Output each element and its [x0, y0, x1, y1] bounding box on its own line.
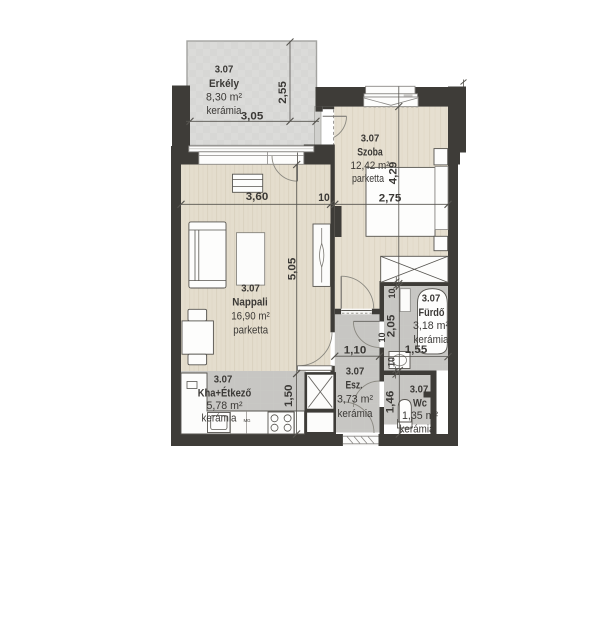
svg-text:kerámia: kerámia: [207, 105, 242, 117]
svg-text:1,35 m²: 1,35 m²: [402, 410, 438, 422]
svg-text:3.07: 3.07: [361, 134, 380, 145]
svg-text:Esz.: Esz.: [346, 380, 363, 392]
svg-text:10: 10: [387, 289, 398, 299]
svg-text:Nappali: Nappali: [232, 297, 268, 309]
svg-text:5,78 m²: 5,78 m²: [207, 400, 243, 412]
svg-text:10: 10: [386, 357, 397, 367]
svg-text:3,05: 3,05: [241, 110, 264, 122]
svg-text:10: 10: [377, 333, 388, 343]
svg-text:12,42 m²: 12,42 m²: [351, 160, 390, 172]
svg-text:parketta: parketta: [352, 173, 384, 185]
svg-text:3,60: 3,60: [246, 191, 269, 203]
svg-text:1,50: 1,50: [283, 385, 295, 408]
svg-text:1,46: 1,46: [385, 391, 397, 414]
svg-text:2,75: 2,75: [379, 193, 402, 205]
svg-text:16,90 m²: 16,90 m²: [231, 311, 270, 323]
svg-text:Fürdő: Fürdő: [419, 307, 445, 319]
svg-text:5,05: 5,05: [286, 258, 298, 281]
svg-text:parketta: parketta: [233, 325, 268, 337]
svg-text:MG: MG: [244, 418, 251, 423]
svg-text:kerámia: kerámia: [338, 408, 373, 420]
svg-text:8,30 m²: 8,30 m²: [206, 92, 242, 104]
svg-text:3.07: 3.07: [215, 65, 234, 76]
svg-text:4,29: 4,29: [388, 162, 400, 185]
svg-text:Wc: Wc: [413, 398, 427, 410]
svg-text:Erkély: Erkély: [209, 78, 239, 90]
svg-text:1,55: 1,55: [405, 344, 428, 356]
svg-text:Szoba: Szoba: [357, 147, 383, 159]
svg-text:3,73 m²: 3,73 m²: [337, 393, 373, 405]
svg-text:3.07: 3.07: [422, 293, 441, 304]
svg-text:1,10: 1,10: [344, 344, 367, 356]
svg-text:kerámia: kerámia: [400, 424, 435, 436]
svg-text:3.07: 3.07: [241, 284, 260, 295]
svg-text:3.07: 3.07: [214, 375, 233, 386]
svg-text:3.07: 3.07: [410, 385, 429, 396]
svg-text:3.07: 3.07: [346, 366, 365, 377]
svg-text:Kha+Étkező: Kha+Étkező: [198, 387, 252, 400]
svg-text:3,18 m²: 3,18 m²: [413, 320, 449, 332]
svg-text:kerámia: kerámia: [202, 413, 237, 425]
svg-text:10: 10: [318, 192, 330, 204]
svg-text:2,55: 2,55: [277, 81, 289, 104]
